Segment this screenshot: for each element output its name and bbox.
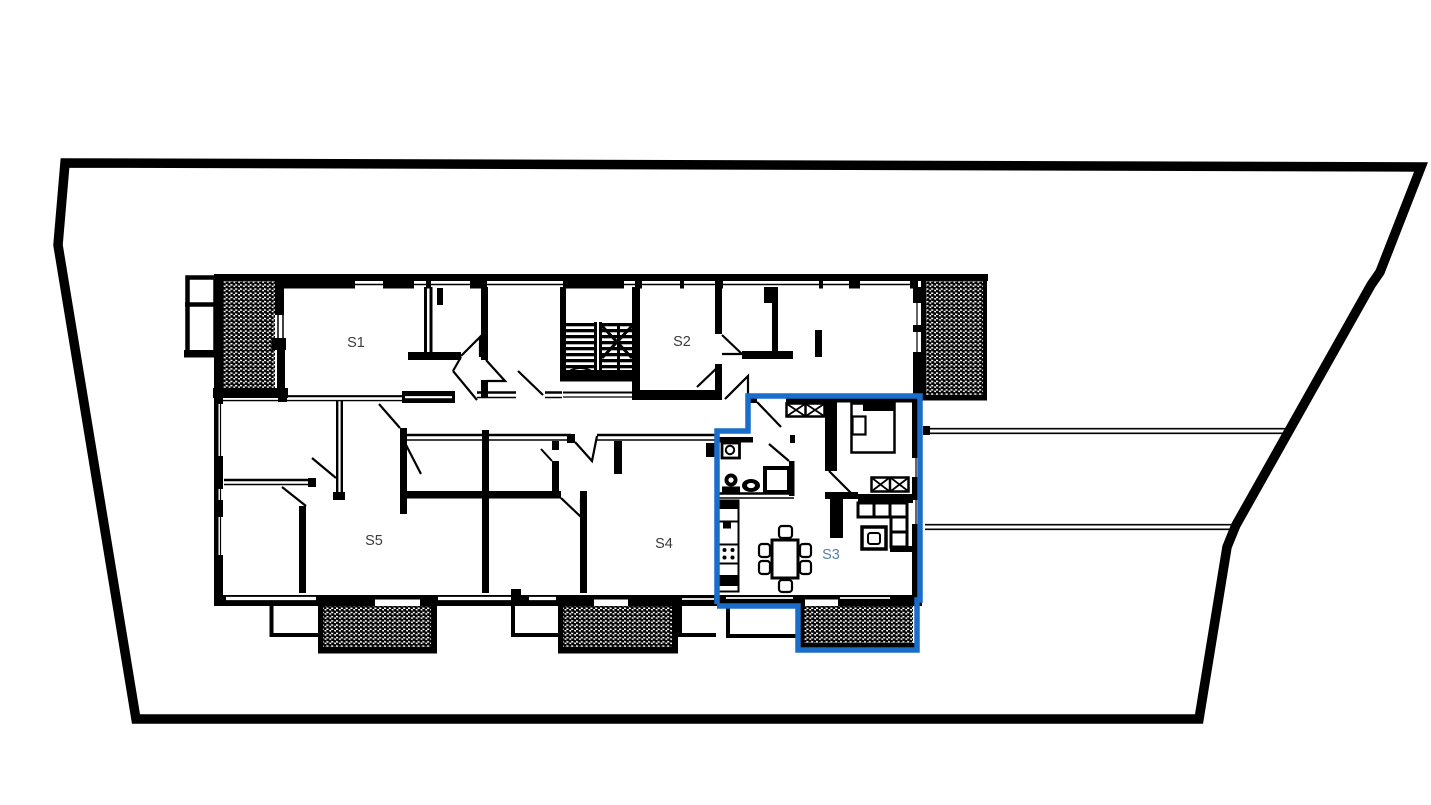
- svg-text:S5: S5: [365, 533, 383, 549]
- svg-text:S1: S1: [347, 335, 365, 351]
- svg-text:S2: S2: [673, 334, 691, 350]
- svg-text:S3: S3: [822, 547, 840, 563]
- svg-text:S4: S4: [655, 536, 673, 552]
